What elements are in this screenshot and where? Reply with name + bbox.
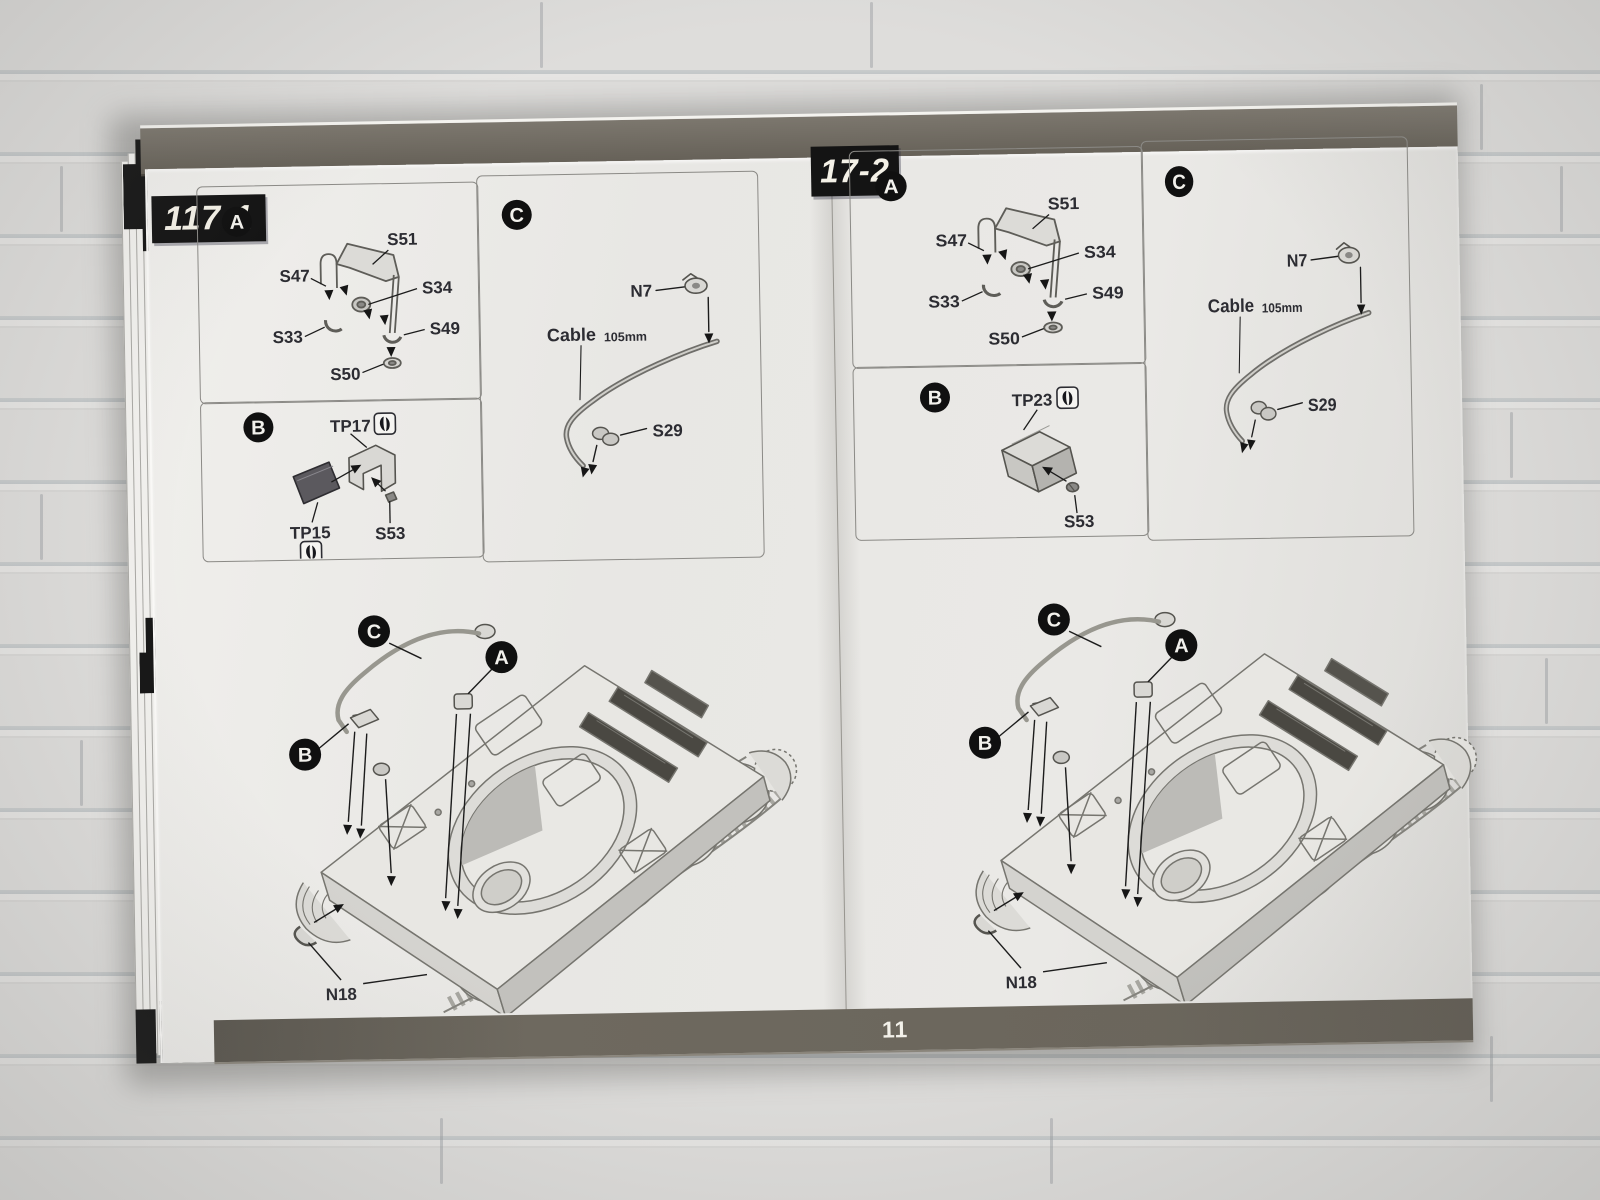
tow-cable-parts [564,273,720,479]
assembly-diagram-right: C A B N18 [918,556,1486,1006]
part-label: S33 [928,291,960,311]
brick-joint [1050,1118,1053,1184]
panel-letter: C [1172,171,1186,194]
tank-hull-drawing [967,596,1481,1006]
brick-joint [1545,658,1548,724]
cable-label: Cable [1208,295,1255,317]
brick-joint [540,2,543,68]
panel-b-left-diagram: B TP17 TP15 S53 [200,397,483,560]
photo-scene: 1 117-1 A S51 S47 S34 S33 S49 S50 B TP17… [0,0,1600,1200]
brick-joint [1560,166,1563,232]
tow-cable-parts [1223,242,1371,454]
callout-letter: A [1174,635,1189,657]
pe-symbol-icon [374,413,395,434]
pe-symbol-icon [1057,387,1078,408]
part-label: S51 [387,230,418,250]
panel-letter: B [928,387,943,409]
wire-bracket-parts [960,207,1087,338]
panel-b-right-diagram: B TP23 S53 [852,362,1147,539]
part-label: S34 [1084,242,1116,262]
part-label: S50 [330,365,361,385]
part-label: S29 [1308,395,1337,415]
part-label: N7 [1287,251,1308,271]
brick-joint [1510,412,1513,478]
brick-joint [870,2,873,68]
brick-joint [1490,1036,1493,1102]
wire-bracket-parts [303,242,425,373]
callout-letter: C [1046,609,1061,631]
part-label: S51 [1048,193,1080,213]
panel-letter: A [229,212,244,234]
part-label: N7 [630,281,652,300]
instruction-booklet: 1 117-1 A S51 S47 S34 S33 S49 S50 B TP17… [120,76,1474,1065]
panel-c-left-diagram: C N7 Cable 105mm S29 [476,171,763,561]
callout-letter: B [298,744,313,766]
panel-letter: A [883,177,899,199]
brick-joint [60,166,63,232]
assembly-diagram-left: C A B N18 [238,568,806,1018]
part-label: S50 [988,328,1020,348]
panel-letter: C [509,205,524,227]
cable-length-label: 105mm [1262,300,1303,315]
callout-letter: B [978,733,993,755]
part-label: TP17 [330,416,371,436]
tank-hull-drawing [287,608,801,1018]
panel-c-right-diagram: C N7 Cable 105mm S29 [1141,136,1413,539]
part-label: N18 [326,985,358,1005]
cable-label: Cable [547,324,596,345]
panel-letter: B [251,417,266,439]
page-number: 11 [882,1016,909,1043]
panel-a-right-diagram: A S51 S47 S34 S33 S49 S50 [849,146,1145,367]
brick-joint [80,740,83,806]
part-label: S49 [430,319,461,339]
wedge-box-part [1001,409,1079,514]
part-label: S53 [1064,512,1095,532]
part-label: S47 [935,230,967,250]
part-label: S34 [422,278,453,298]
panel-a-left-diagram: A S51 S47 S34 S33 S49 S50 [196,182,480,403]
part-label: S29 [652,421,683,441]
brick-joint [440,1118,443,1184]
brick-joint [40,494,43,560]
part-label: TP15 [290,523,331,543]
callout-letter: C [367,621,382,643]
pe-symbol-icon [300,541,321,560]
part-label: S53 [375,524,406,544]
part-label: S47 [279,266,310,286]
cable-length-label: 105mm [604,330,647,345]
bracket-and-plate-parts [293,433,398,525]
brick-joint [1480,84,1483,150]
part-label: TP23 [1012,391,1053,411]
callout-letter: A [494,647,509,669]
part-label: S49 [1092,283,1124,303]
page-edge-ink [136,1009,157,1063]
part-label: S33 [272,328,303,348]
part-label: N18 [1005,973,1037,993]
